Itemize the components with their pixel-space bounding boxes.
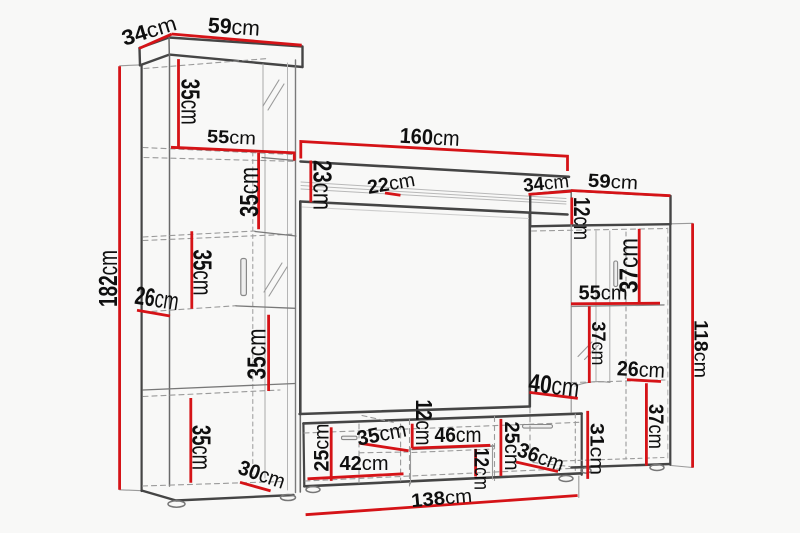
svg-text:55cm: 55cm <box>207 125 257 148</box>
svg-text:35cm: 35cm <box>244 329 272 380</box>
svg-text:138cm: 138cm <box>410 486 473 512</box>
svg-text:40cm: 40cm <box>527 369 581 403</box>
svg-text:25cm: 25cm <box>311 424 334 472</box>
svg-text:59cm: 59cm <box>207 13 260 40</box>
svg-text:182cm: 182cm <box>95 250 123 307</box>
svg-text:37cm: 37cm <box>644 404 667 449</box>
svg-text:42cm: 42cm <box>340 453 389 475</box>
svg-text:35cm: 35cm <box>176 79 204 125</box>
svg-text:160cm: 160cm <box>399 124 460 151</box>
svg-text:12cm: 12cm <box>569 197 595 240</box>
svg-text:22cm: 22cm <box>366 169 417 199</box>
svg-text:35cm: 35cm <box>187 425 215 470</box>
svg-text:23cm: 23cm <box>308 160 336 210</box>
svg-text:12cm: 12cm <box>411 400 437 446</box>
svg-text:26cm: 26cm <box>616 357 665 382</box>
svg-text:35cm: 35cm <box>188 250 216 296</box>
svg-text:118cm: 118cm <box>690 320 711 378</box>
svg-text:35cm: 35cm <box>236 167 264 217</box>
svg-text:12cm: 12cm <box>470 448 493 490</box>
svg-text:37cm: 37cm <box>587 322 609 366</box>
svg-text:55cm: 55cm <box>579 283 628 305</box>
svg-text:46cm: 46cm <box>435 424 482 447</box>
svg-text:31cm: 31cm <box>586 423 607 475</box>
svg-text:59cm: 59cm <box>587 171 638 195</box>
